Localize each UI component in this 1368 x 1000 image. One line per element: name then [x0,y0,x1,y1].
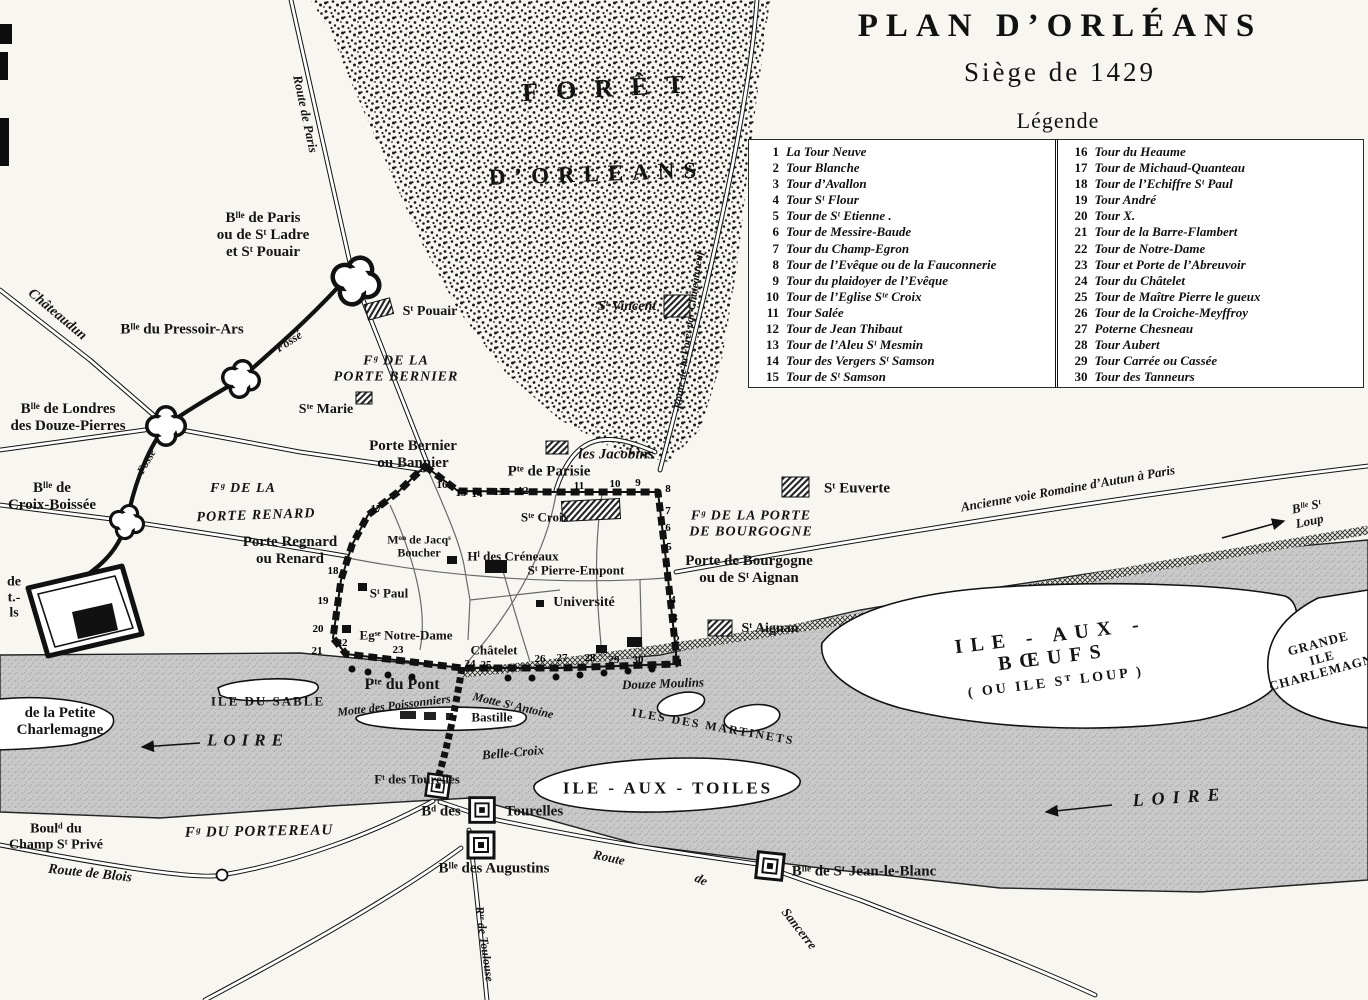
wall-tower-number-2: 2 [674,634,680,646]
legend-item: 22Tour de Notre-Dame [1064,241,1362,257]
foret-d-orleans [310,0,770,462]
legend-item-label: Tour André [1095,192,1362,208]
legend-item: 12Tour de Jean Thibaut [755,321,1053,337]
wall-tower-number-3: 3 [672,612,678,624]
mon-jacq-boucher-label: Mᵒⁿ de Jacqˢ Boucher [387,534,451,561]
legend-box: 1La Tour Neuve2Tour Blanche3Tour d’Avall… [748,139,1364,388]
douze-moulins-label: Douze Moulins [622,675,704,692]
wall-tower-number-19: 19 [318,595,329,607]
legend-item: 10Tour de l’Eglise Sᵗᵉ Croix [755,289,1053,305]
legend-item: 8Tour de l’Evêque ou de la Fauconnerie [755,257,1053,273]
porte-bourgogne-label: Porte de Bourgogne ou de Sᵗ Aignan [685,553,812,587]
legend-item-label: Tour X. [1095,208,1362,224]
legend-item-label: Tour de l’Evêque ou de la Fauconnerie [786,257,1053,273]
left-edge-fragment: de t.- ls [7,574,21,621]
ste-marie-label: Sᵗᵉ Marie [299,402,353,418]
wall-tower-number-9: 9 [635,477,641,489]
wall-tower-number-10: 10 [610,478,621,490]
legend-item-number: 20 [1064,208,1088,224]
legend-item-label: Tour d’Avallon [786,176,1053,192]
legend-item-number: 5 [755,208,779,224]
wall-tower-number-23: 23 [393,644,404,656]
legend-item-label: Tour Aubert [1095,337,1362,353]
legend-item: 7Tour du Champ-Egron [755,241,1053,257]
legend-item-number: 15 [755,369,779,385]
legend-heading: Légende [958,108,1158,134]
legend-item: 2Tour Blanche [755,160,1053,176]
legend-item-number: 25 [1064,289,1088,305]
legend-item-number: 16 [1064,144,1088,160]
legend-column-2: 16Tour du Heaume17Tour de Michaud-Quante… [1055,140,1364,387]
legend-item: 21Tour de la Barre-Flambert [1064,224,1362,240]
legend-item-number: 19 [1064,192,1088,208]
wall-tower-number-12: 12 [518,485,529,497]
wall-tower-number-27: 27 [557,652,568,664]
ste-marie-church-icon [356,392,372,404]
pte-du-pont-label: Pᵗᵉ du Pont [364,676,439,694]
legend-item-number: 23 [1064,257,1088,273]
legend-item: 20Tour X. [1064,208,1362,224]
legend-item-number: 7 [755,241,779,257]
wall-tower-number-30: 30 [633,654,644,666]
legend-item-label: Tour de la Croiche-Meyffroy [1095,305,1362,321]
fg-porte-bourgogne-label: Fᵍ DE LA PORTE DE BOURGOGNE [689,508,813,539]
wall-tower-number-6: 6 [665,522,671,534]
legend-item-label: Tour et Porte de l’Abreuvoir [1095,257,1362,273]
legend-item: 18Tour de l’Echiffre Sᵗ Paul [1064,176,1362,192]
wall-tower-number-20: 20 [313,623,324,635]
petite-charlemagne-label: de la Petite Charlemagne [17,705,104,739]
legend-item-label: Tour de Michaud-Quanteau [1095,160,1362,176]
blle-augustins-label: Bˡˡᵉ des Augustins [439,861,550,878]
legend-item-label: Tour de l’Eglise Sᵗᵉ Croix [786,289,1053,305]
blle-londres-label: Bˡˡᵉ de Londres des Douze-Pierres [10,401,125,435]
st-pouair-label: Sᵗ Pouair [403,304,458,320]
wall-tower-number-13: 13 [494,486,505,498]
legend-item-number: 12 [755,321,779,337]
legend-item-number: 6 [755,224,779,240]
wall-tower-number-21: 21 [312,645,323,657]
legend-item: 30Tour des Tanneurs [1064,369,1362,385]
legend-item: 17Tour de Michaud-Quanteau [1064,160,1362,176]
legend-item-number: 24 [1064,273,1088,289]
ft-des-tourelles-label: Fᵗ des Tourelles [374,773,460,788]
legend-item-number: 8 [755,257,779,273]
fg-de-la-renard-label: Fᵍ DE LA [210,481,276,497]
wall-tower-number-29: 29 [609,654,620,666]
wall-tower-number-4: 4 [670,594,676,606]
legend-item-label: Tour de l’Echiffre Sᵗ Paul [1095,176,1362,192]
legend-item-label: Tour de Sᵗ Samson [786,369,1053,385]
st-loup-pointer-arrow-icon [1222,521,1284,538]
st-euverte-church-icon [782,477,809,497]
tourelles-label: Tourelles [505,804,563,821]
legend-item-label: Tour Blanche [786,160,1053,176]
legend-item-label: Tour des Tanneurs [1095,369,1362,385]
legend-item: 5Tour de Sᵗ Etienne . [755,208,1053,224]
legend-item-number: 2 [755,160,779,176]
legend-item-label: La Tour Neuve [786,144,1053,160]
legend-item-label: Tour du Champ-Egron [786,241,1053,257]
boulevard-tourelles-fort-icon [470,798,495,823]
scan-artifacts [0,24,12,166]
egse-notre-dame-label: Egˢᵉ Notre-Dame [360,629,453,644]
jacobins-church-icon [546,441,568,454]
legend-item: 27Poterne Chesneau [1064,321,1362,337]
st-aignan-church-icon [708,620,732,636]
legend-item: 19Tour André [1064,192,1362,208]
bastille-label: Bastille [471,711,512,726]
wall-tower-number-14: 14 [472,488,483,500]
legend-item-number: 4 [755,192,779,208]
wall-tower-number-1: 1 [677,657,683,669]
bd-des-label: Bᵈ des [421,804,461,821]
wall-tower-number-8: 8 [665,483,671,495]
bastille-croix-boissee-icon [106,501,147,542]
legend-item-label: Tour des Vergers Sᵗ Samson [786,353,1053,369]
wall-tower-number-28: 28 [585,652,596,664]
bould-champ-st-prive-label: Boulᵈ du Champ Sᵗ Privé [9,821,103,852]
les-jacobins-label: les Jacobins [578,447,653,464]
legend-item: 24Tour du Châtelet [1064,273,1362,289]
ste-croix-cathedral-icon [562,498,621,521]
wall-tower-number-15: 15 [456,487,467,499]
st-pierre-empont-label: Sᵗ Pierre-Empont [528,564,625,579]
legend-item-label: Tour Salée [786,305,1053,321]
legend-item: 1La Tour Neuve [755,144,1053,160]
legend-item-number: 22 [1064,241,1088,257]
blle-st-jean-label: Bˡˡᵉ de Sᵗ Jean-le-Blanc [792,864,936,881]
ile-du-sable-label: ILE DU SABLE [211,695,325,710]
legend-item-label: Tour de Maître Pierre le gueux [1095,289,1362,305]
legend-item-number: 29 [1064,353,1088,369]
legend-item-number: 1 [755,144,779,160]
legend-item: 13Tour de l’Aleu Sᵗ Mesmin [755,337,1053,353]
legend-item-number: 27 [1064,321,1088,337]
blle-pressoir-ars-label: Bˡˡᵉ du Pressoir-Ars [120,322,243,339]
legend-item-label: Tour Carrée ou Cassée [1095,353,1362,369]
wall-tower-number-24: 24 [465,658,476,670]
legend-item: 29Tour Carrée ou Cassée [1064,353,1362,369]
legend-item-label: Tour de la Barre-Flambert [1095,224,1362,240]
wall-tower-number-26: 26 [535,653,546,665]
legend-item-number: 9 [755,273,779,289]
porte-regnard-label: Porte Regnard ou Renard [243,534,338,568]
legend-item-label: Tour de Sᵗ Etienne . [786,208,1053,224]
legend-item-label: Tour du Châtelet [1095,273,1362,289]
ile-aux-toiles-label: ILE - AUX - TOILES [563,778,773,797]
map-title: PLAN D’ORLÉANS [840,8,1280,45]
fg-porte-bernier-label: Fᵍ DE LA PORTE BERNIER [334,353,459,384]
road-post [217,870,228,881]
legend-item-number: 21 [1064,224,1088,240]
legend-item: 3Tour d’Avallon [755,176,1053,192]
legend-item-label: Tour de Messire-Baude [786,224,1053,240]
legend-item-label: Tour de l’Aleu Sᵗ Mesmin [786,337,1053,353]
wall-tower-number-7: 7 [665,505,671,517]
legend-item: 15Tour de Sᵗ Samson [755,369,1053,385]
legend-item: 6Tour de Messire-Baude [755,224,1053,240]
chatelet-label: Châtelet [471,644,518,659]
st-euverte-label: Sᵗ Euverte [824,481,890,498]
legend-item: 26Tour de la Croiche-Meyffroy [1064,305,1362,321]
map-subtitle: Siège de 1429 [840,57,1280,88]
legend-item-number: 3 [755,176,779,192]
st-aignan-label: Sᵗ Aignan [741,621,798,637]
legend-item-number: 10 [755,289,779,305]
st-paul-label: Sᵗ Paul [370,587,409,602]
legend-item-number: 30 [1064,369,1088,385]
legend-item: 11Tour Salée [755,305,1053,321]
legend-item: 25Tour de Maître Pierre le gueux [1064,289,1362,305]
st-pouair-church-icon [364,298,393,320]
bastille-st-jean-le-blanc-icon [756,852,785,881]
wall-tower-number-25: 25 [481,659,492,671]
legend-item: 4Tour Sᵗ Flour [755,192,1053,208]
legend-item-number: 17 [1064,160,1088,176]
legend-item: 14Tour des Vergers Sᵗ Samson [755,353,1053,369]
legend-item-label: Tour de Jean Thibaut [786,321,1053,337]
legend-column-1: 1La Tour Neuve2Tour Blanche3Tour d’Avall… [749,140,1055,387]
legend-item-number: 14 [755,353,779,369]
legend-item-label: Tour Sᵗ Flour [786,192,1053,208]
legend-item-number: 26 [1064,305,1088,321]
ste-croix-label: Sᵗᵉ Croix [521,511,569,526]
map-title-block: PLAN D’ORLÉANS Siège de 1429 [840,8,1280,88]
fort-sw-icon [28,566,142,656]
blle-de-paris-label: Bˡˡᵉ de Paris ou de Sᵗ Ladre et Sᵗ Pouai… [217,210,310,260]
legend-item: 16Tour du Heaume [1064,144,1362,160]
legend-item: 28Tour Aubert [1064,337,1362,353]
legend-item-number: 18 [1064,176,1088,192]
universite-label: Université [553,595,614,611]
legend-item-label: Tour de Notre-Dame [1095,241,1362,257]
legend-item-label: Tour du plaidoyer de l’Evêque [786,273,1053,289]
legend-item: 9Tour du plaidoyer de l’Evêque [755,273,1053,289]
wall-tower-number-11: 11 [574,480,584,492]
legend-item-number: 28 [1064,337,1088,353]
legend-item-number: 13 [755,337,779,353]
pte-parisie-label: Pᵗᵉ de Parisie [508,464,591,481]
legend-item-number: 11 [755,305,779,321]
legend-item: 23Tour et Porte de l’Abreuvoir [1064,257,1362,273]
wall-tower-number-18: 18 [328,565,339,577]
st-vincent-label: Sᵗ Vincent [598,299,656,315]
blle-croix-boissee-label: Bˡˡᵉ de Croix-Boissée [8,480,96,514]
wall-tower-number-16: 16 [437,479,448,491]
wall-tower-number-5: 5 [666,541,672,553]
legend-item-label: Tour du Heaume [1095,144,1362,160]
legend-item-label: Poterne Chesneau [1095,321,1362,337]
fg-portereau-label: Fᵍ DU PORTEREAU [185,822,334,841]
loire-left-label: LOIRE [207,730,289,749]
wall-tower-number-22: 22 [337,637,348,649]
porte-bernier-label: Porte Bernier ou Bannier [369,438,457,472]
wall-tower-number-17: 17 [371,503,382,515]
bastille-augustins-icon [468,832,494,858]
historical-map-orleans: PLAN D’ORLÉANS Siège de 1429 Légende 1La… [0,0,1368,1000]
